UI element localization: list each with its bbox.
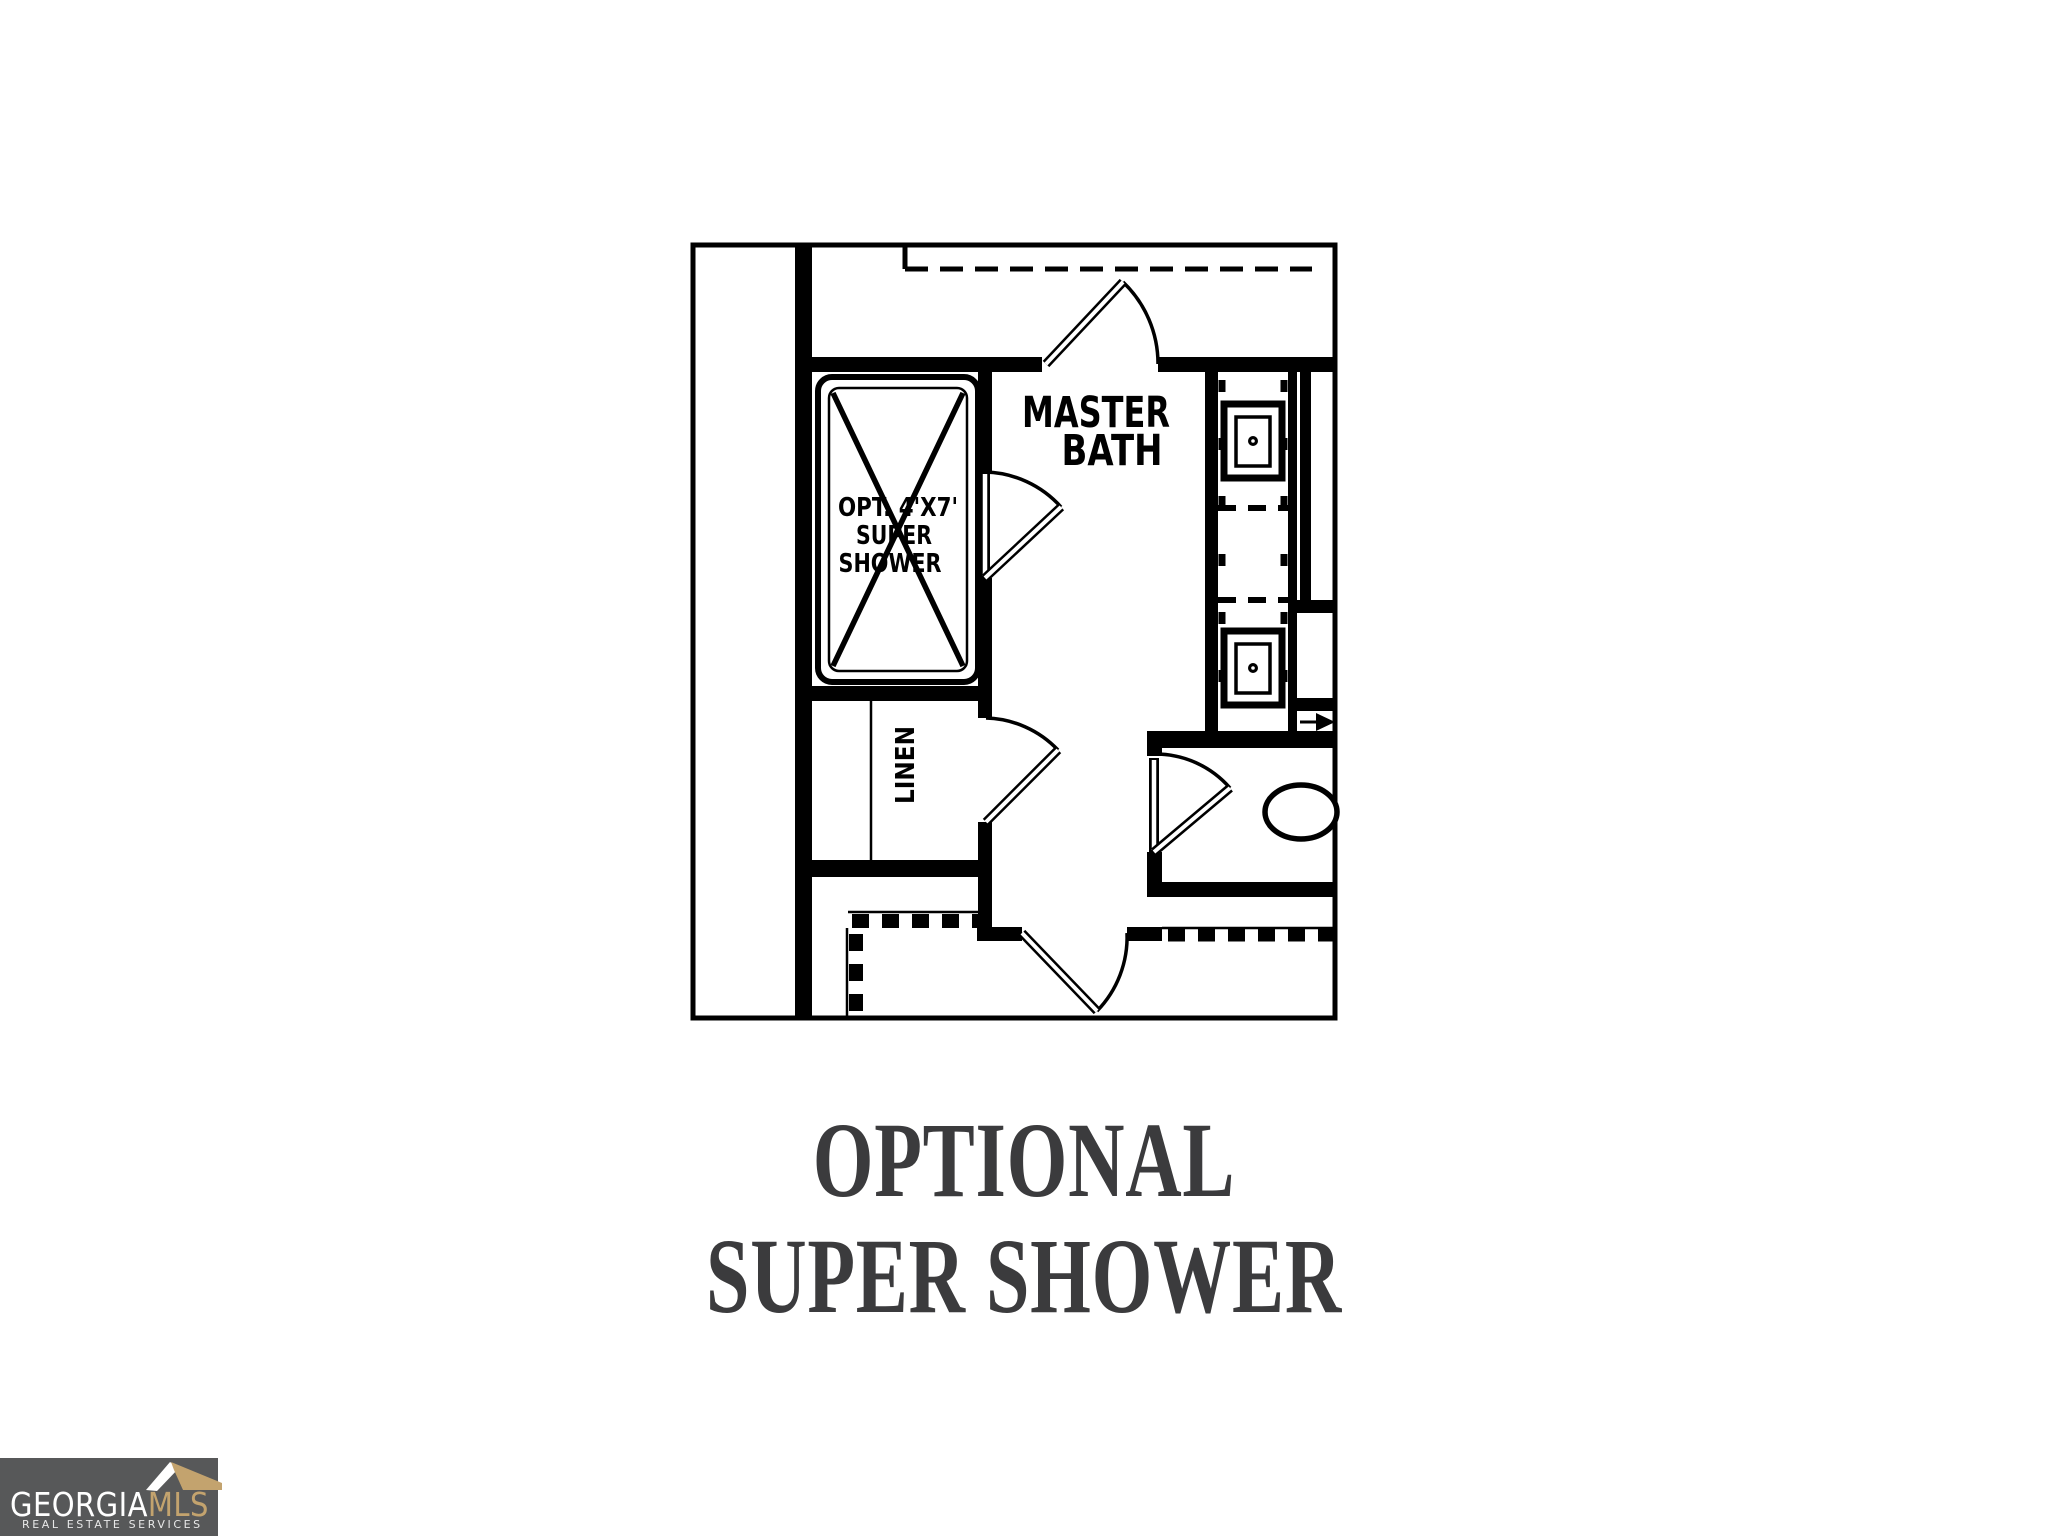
door-linen	[986, 718, 1058, 822]
door-hall	[1022, 933, 1127, 1011]
caption: OPTIONAL SUPER SHOWER	[0, 1103, 2048, 1335]
logo-tagline: REAL ESTATE SERVICES	[22, 1518, 203, 1531]
page: MASTER BATH OPT. 4'X7' SUPER SHOWER LINE…	[0, 0, 2048, 1536]
shower-label-line1: OPT. 4'X7'	[838, 493, 958, 523]
room-label-line2: BATH	[1062, 426, 1163, 476]
shower-label-line2: SUPER	[856, 521, 932, 551]
caption-line1: OPTIONAL	[276, 1103, 1771, 1219]
sink-top	[1224, 404, 1282, 478]
caption-line2: SUPER SHOWER	[276, 1219, 1771, 1335]
direction-arrow-icon	[1300, 713, 1335, 731]
georgia-mls-logo: GEORGIAMLS REAL ESTATE SERVICES	[0, 1458, 218, 1536]
door-master-entry	[1046, 282, 1158, 364]
door-water-closet	[1154, 754, 1230, 852]
sink-bottom	[1224, 631, 1282, 705]
toilet-icon	[1265, 785, 1337, 839]
shower-label-line3: SHOWER	[839, 549, 942, 579]
linen-label: LINEN	[891, 726, 921, 804]
door-shower	[985, 472, 1061, 578]
